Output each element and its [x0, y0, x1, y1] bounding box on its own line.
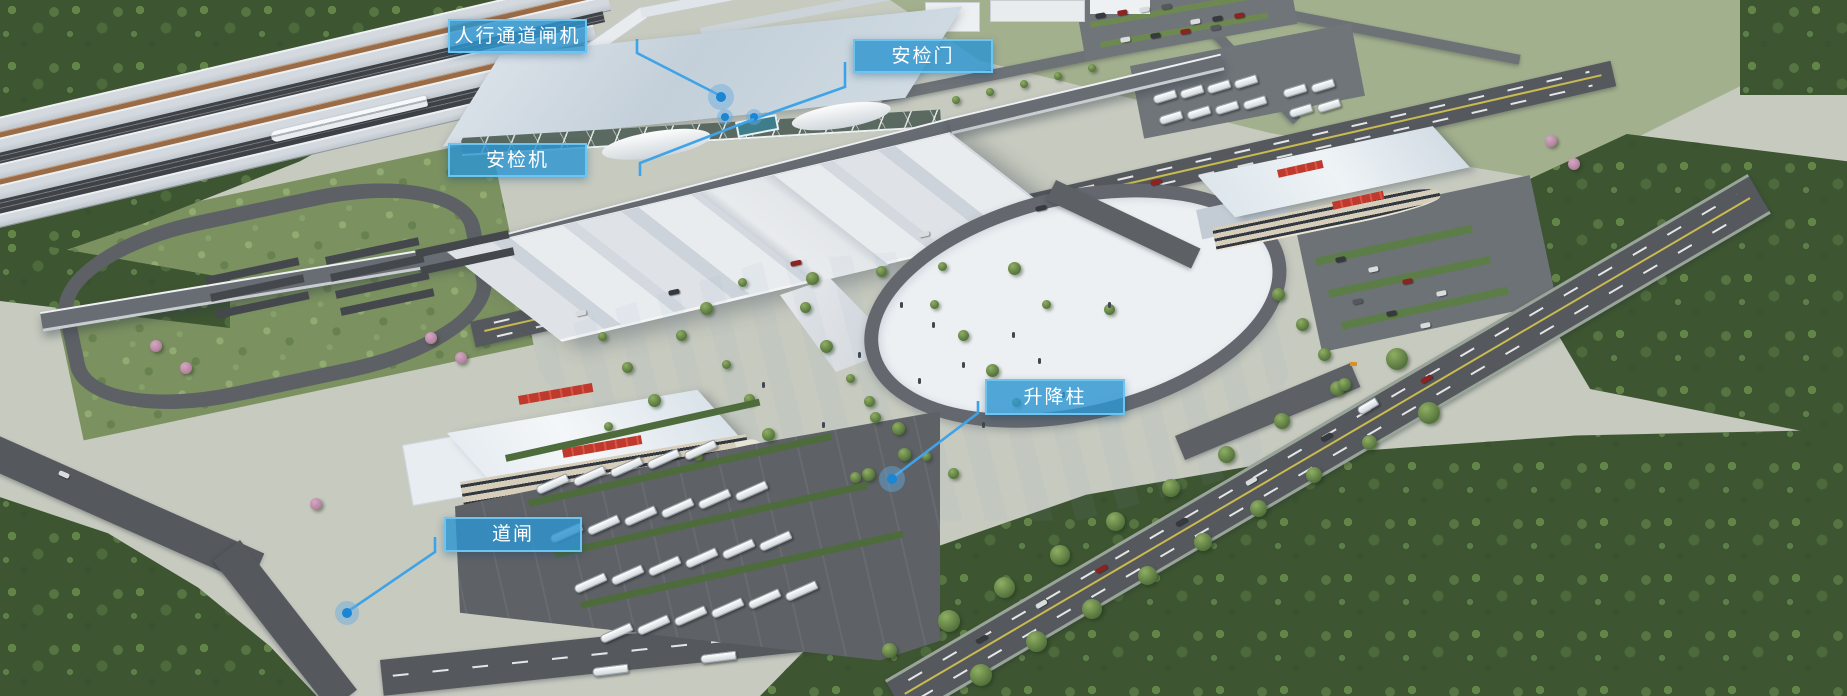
leader-line-security-scanner	[640, 119, 754, 176]
marker-dot-lifting-bollard	[887, 474, 897, 484]
station-aerial-render: 人行通道闸机 安检门 安检机 升降柱 道闸	[0, 0, 1847, 696]
callout-security-scanner: 安检机	[448, 143, 587, 177]
callout-lifting-bollard: 升降柱	[985, 379, 1125, 415]
leader-line-pedestrian-channel-gate	[637, 39, 721, 96]
leader-lines-layer	[0, 0, 1847, 696]
leader-line-security-door	[754, 62, 845, 119]
marker-dot-pedestrian-channel-gate	[716, 92, 726, 102]
callout-barrier-gate: 道闸	[444, 517, 582, 552]
callout-security-door: 安检门	[853, 39, 993, 73]
callout-pedestrian-channel-gate: 人行通道闸机	[448, 19, 587, 53]
marker-dot-barrier-gate	[342, 608, 352, 618]
marker-dot-security-door	[721, 113, 729, 121]
leader-line-lifting-bollard	[892, 401, 978, 478]
leader-line-barrier-gate	[347, 537, 435, 612]
